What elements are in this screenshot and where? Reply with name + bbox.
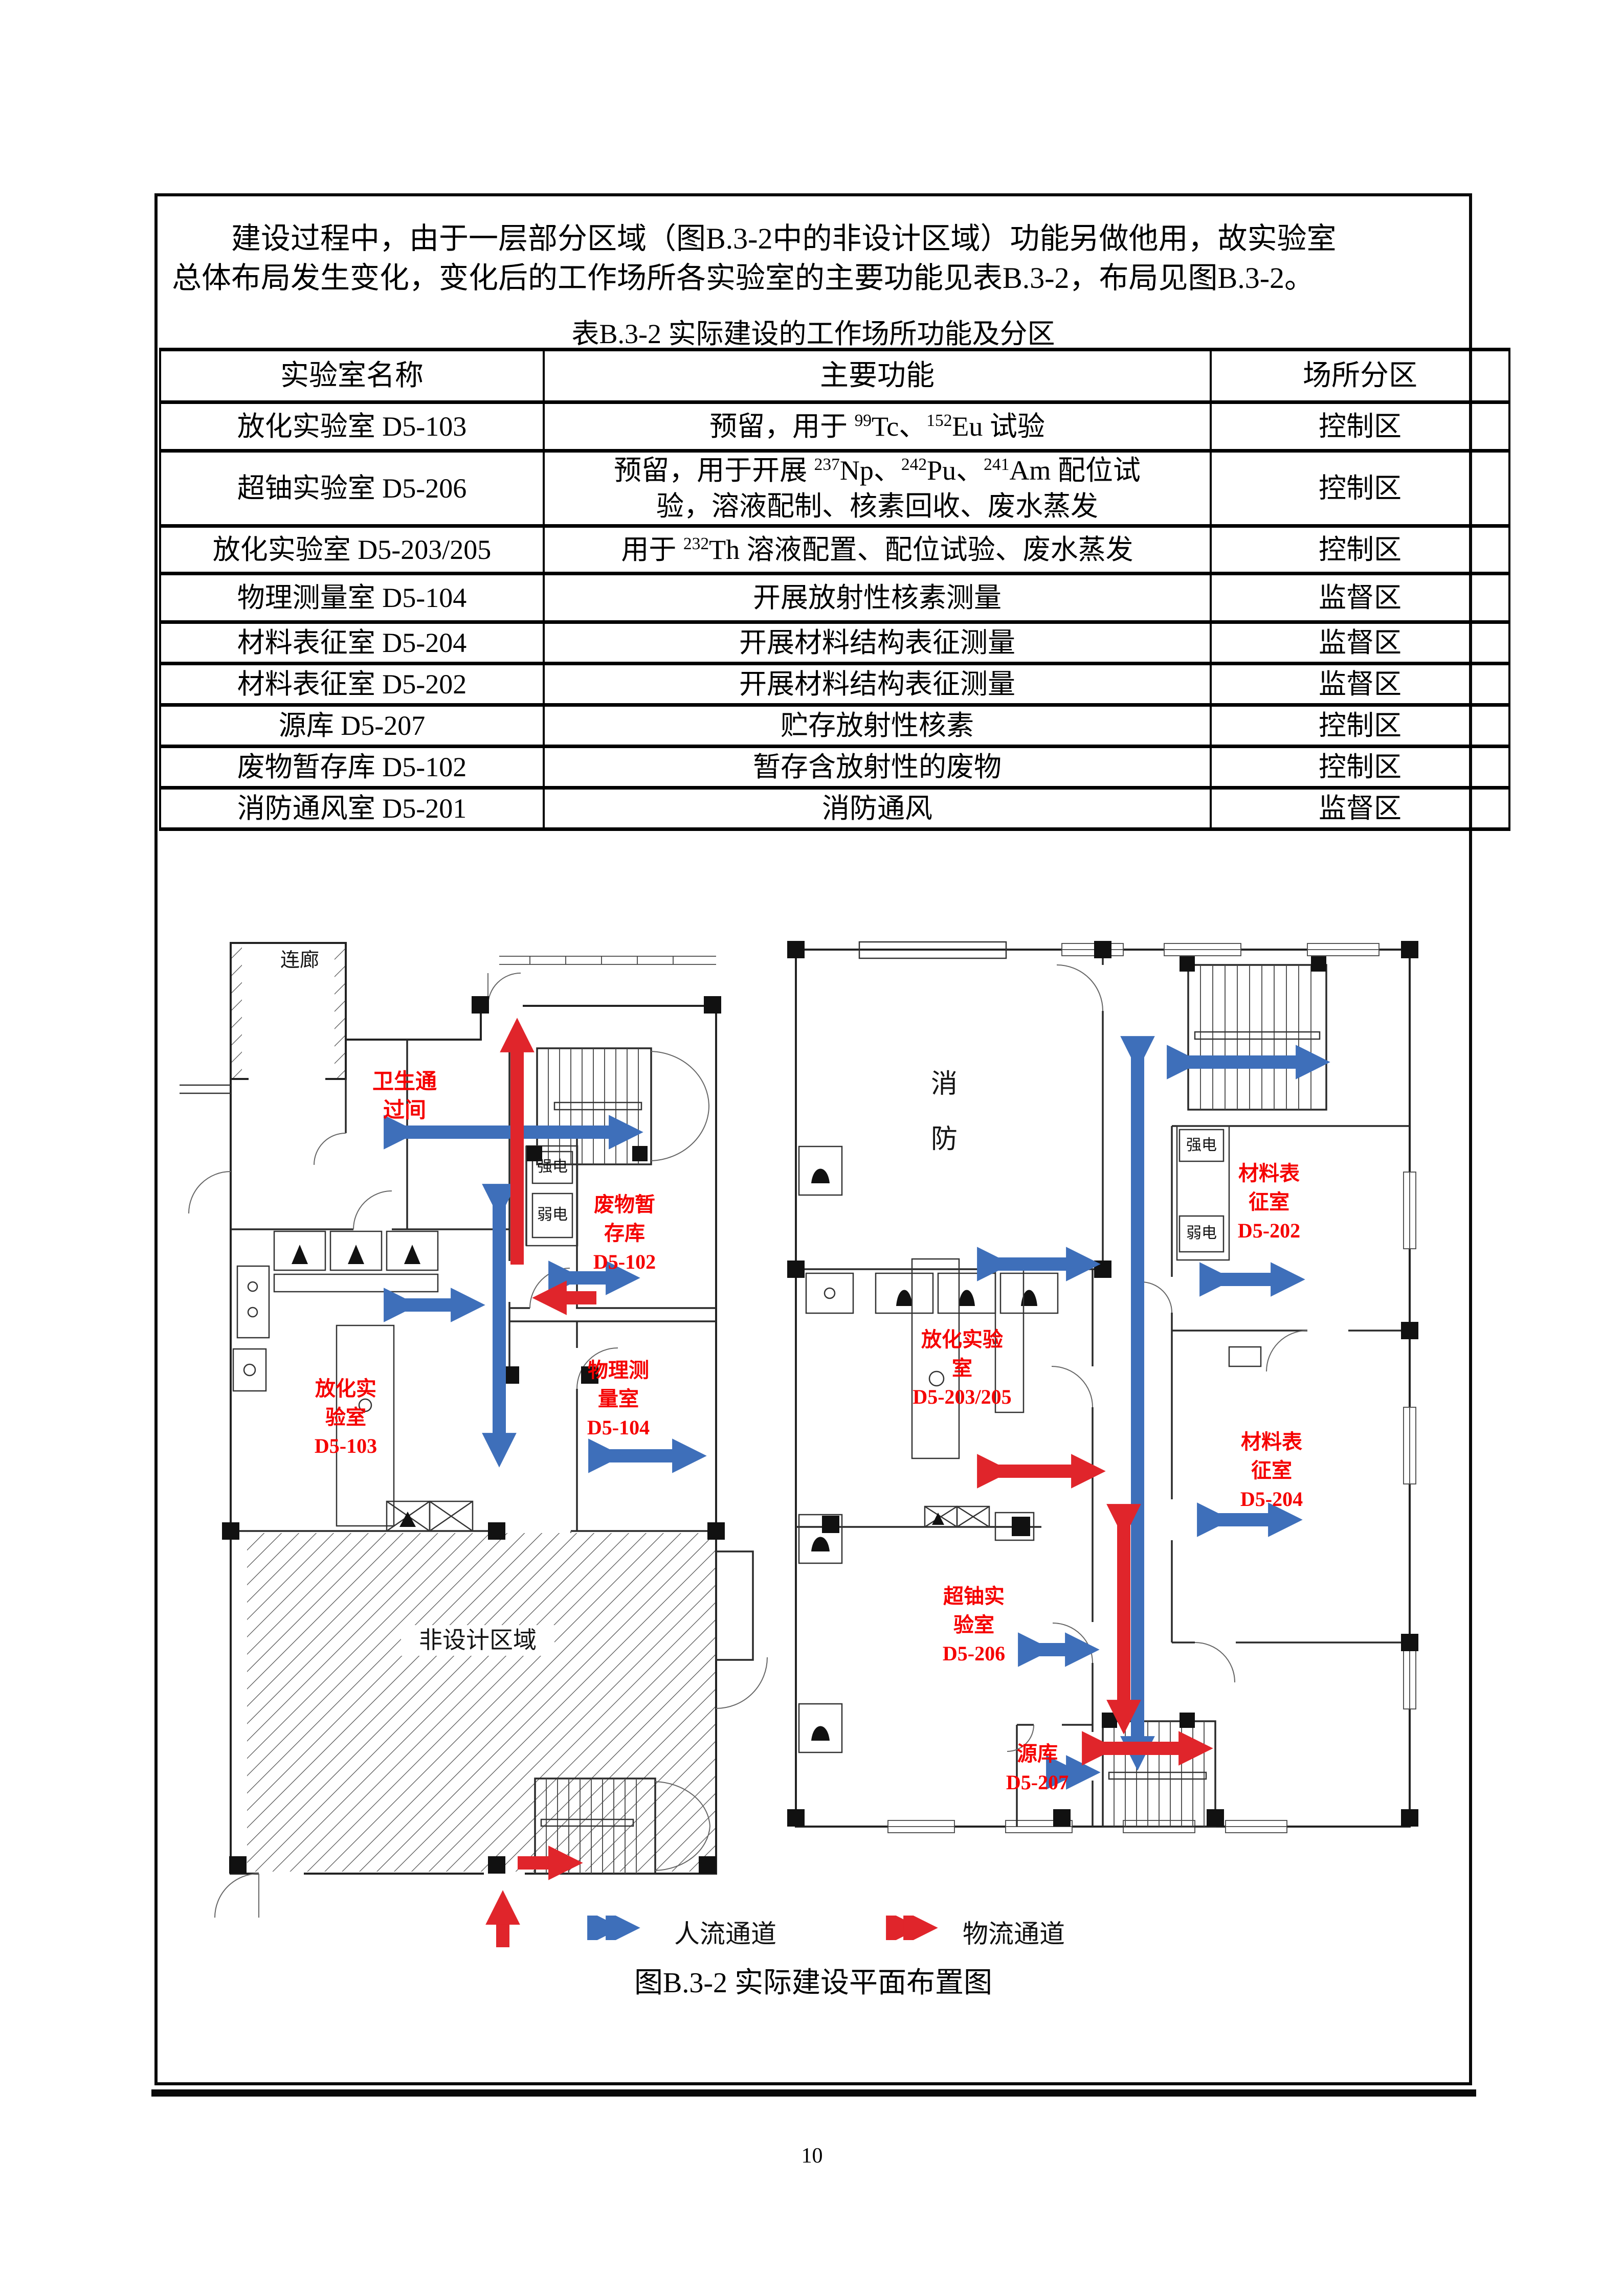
- zone-cell: 控制区: [1211, 526, 1509, 574]
- door-arcs: [1007, 965, 1307, 1751]
- table-row: 放化实验室 D5-203/205用于 232Th 溶液配置、配位试验、废水蒸发控…: [160, 526, 1509, 574]
- interior-walls: [796, 950, 1410, 1827]
- zone-cell: 控制区: [1211, 451, 1509, 526]
- label-mat-room-204: 材料表 征室 D5-204: [1220, 1428, 1323, 1514]
- page-number: 10: [0, 2144, 1624, 2168]
- sink-unit: [233, 1266, 269, 1391]
- corridor-hatch-left: [232, 944, 242, 1078]
- table-row: 物理测量室 D5-104开展放射性核素测量监督区: [160, 574, 1509, 622]
- label-fire-room: 消 防: [914, 1057, 975, 1167]
- table-row: 源库 D5-207贮存放射性核素控制区: [160, 705, 1509, 747]
- content-frame: 建设过程中，由于一层部分区域（图B.3-2中的非设计区域）功能另做他用，故实验室…: [154, 193, 1472, 2085]
- table-header-row: 实验室名称主要功能场所分区: [160, 350, 1509, 402]
- zone-cell: 控制区: [1211, 747, 1509, 788]
- table-row: 废物暂存库 D5-102暂存含放射性的废物控制区: [160, 747, 1509, 788]
- function-cell: 预留，用于 99Tc、152Eu 试验: [544, 402, 1211, 451]
- zone-cell: 监督区: [1211, 622, 1509, 664]
- floor-plan-second-floor-drawing: [775, 906, 1425, 1857]
- lab-name-cell: 放化实验室 D5-203/205: [160, 526, 544, 574]
- wall-alcoves: [799, 1146, 842, 1752]
- function-cell: 暂存含放射性的废物: [544, 747, 1211, 788]
- function-cell: 开展放射性核素测量: [544, 574, 1211, 622]
- zone-cell: 监督区: [1211, 788, 1509, 829]
- table-row: 材料表征室 D5-202开展材料结构表征测量监督区: [160, 664, 1509, 705]
- non-design-hatch: [247, 1533, 715, 1872]
- label-strong-power: 强电: [532, 1158, 572, 1176]
- lab-name-cell: 放化实验室 D5-103: [160, 402, 544, 451]
- shaft-boxes: [925, 1506, 1034, 1540]
- label-phys-room-104: 物理测 量室 D5-104: [567, 1356, 670, 1442]
- lab-name-cell: 材料表征室 D5-204: [160, 622, 544, 664]
- table-row: 超铀实验室 D5-206预留，用于开展 237Np、242Pu、241Am 配位…: [160, 451, 1509, 526]
- function-cell: 贮存放射性核素: [544, 705, 1211, 747]
- table-row: 材料表征室 D5-204开展材料结构表征测量监督区: [160, 622, 1509, 664]
- floor-plan-first-floor: 连廊 卫生通 过间 强电 弱电 废物暂 存库 D5-102 放化实 验室 D5-…: [172, 913, 770, 1959]
- table-row: 放化实验室 D5-103预留，用于 99Tc、152Eu 试验控制区: [160, 402, 1509, 451]
- table-body: 实验室名称主要功能场所分区放化实验室 D5-103预留，用于 99Tc、152E…: [160, 350, 1509, 829]
- lab-name-cell: 源库 D5-207: [160, 705, 544, 747]
- floor-plan-first-floor-drawing: [172, 913, 770, 1959]
- fume-hoods: [806, 1273, 1058, 1313]
- label-rad-lab-203-205: 放化实验 室 D5-203/205: [896, 1325, 1029, 1411]
- stairs-lower: [1103, 1721, 1215, 1827]
- label-waste-store-102: 废物暂 存库 D5-102: [573, 1190, 676, 1276]
- stairs-upper: [1188, 965, 1326, 1110]
- entry-canopy: [499, 956, 716, 964]
- table-header-cell: 场所分区: [1211, 350, 1509, 402]
- function-cell: 用于 232Th 溶液配置、配位试验、废水蒸发: [544, 526, 1211, 574]
- label-weak-power: 弱电: [1180, 1224, 1223, 1243]
- label-trans-lab-206: 超铀实 验室 D5-206: [923, 1582, 1025, 1668]
- table-row: 消防通风室 D5-201消防通风监督区: [160, 788, 1509, 829]
- table-header-cell: 主要功能: [544, 350, 1211, 402]
- corridor-hatch-right: [335, 944, 345, 1078]
- label-corridor: 连廊: [269, 946, 330, 975]
- table-title: 表B.3-2 实际建设的工作场所功能及分区: [158, 311, 1469, 351]
- function-cell: 开展材料结构表征测量: [544, 622, 1211, 664]
- material-flow-legend-icon: [843, 1916, 950, 1940]
- exterior-stub: [180, 1085, 231, 1093]
- document-page: 建设过程中，由于一层部分区域（图B.3-2中的非设计区域）功能另做他用，故实验室…: [0, 0, 1624, 2296]
- function-cell: 预留，用于开展 237Np、242Pu、241Am 配位试 验，溶液配制、核素回…: [544, 451, 1211, 526]
- people-flow-legend-icon: [542, 1916, 655, 1940]
- functions-table: 实验室名称主要功能场所分区放化实验室 D5-103预留，用于 99Tc、152E…: [159, 348, 1510, 831]
- lab-name-cell: 物理测量室 D5-104: [160, 574, 544, 622]
- label-non-design-area: 非设计区域: [401, 1625, 554, 1656]
- lab-name-cell: 消防通风室 D5-201: [160, 788, 544, 829]
- label-source-store-207: 源库 D5-207: [986, 1740, 1088, 1797]
- label-mat-room-202: 材料表 征室 D5-202: [1218, 1159, 1320, 1245]
- table-header-cell: 实验室名称: [160, 350, 544, 402]
- shaft-boxes: [387, 1501, 473, 1531]
- lab-name-cell: 超铀实验室 D5-206: [160, 451, 544, 526]
- lab-name-cell: 材料表征室 D5-202: [160, 664, 544, 705]
- function-cell: 开展材料结构表征测量: [544, 664, 1211, 705]
- stairs-upper: [537, 1048, 709, 1164]
- intro-paragraph: 建设过程中，由于一层部分区域（图B.3-2中的非设计区域）功能另做他用，故实验室…: [172, 219, 1461, 298]
- zone-cell: 控制区: [1211, 402, 1509, 451]
- label-strong-power: 强电: [1180, 1136, 1223, 1155]
- function-cell: 消防通风: [544, 788, 1211, 829]
- label-sanitary-pass: 卫生通 过间: [353, 1068, 456, 1125]
- floor-plan-second-floor: 消 防 强电 弱电 材料表 征室 D5-202 放化实验 室 D5-203/20…: [775, 906, 1425, 1857]
- right-bay: [716, 1551, 753, 1660]
- label-rad-lab-103: 放化实 验室 D5-103: [295, 1375, 397, 1460]
- zone-cell: 控制区: [1211, 705, 1509, 747]
- figure-caption: 图B.3-2 实际建设平面布置图: [154, 1960, 1472, 2001]
- material-flow-legend-label: 物流通道: [963, 1914, 1065, 1950]
- people-flow-legend-label: 人流通道: [674, 1914, 776, 1950]
- fume-hoods: [274, 1231, 438, 1292]
- label-weak-power: 弱电: [532, 1206, 572, 1224]
- lab-name-cell: 废物暂存库 D5-102: [160, 747, 544, 788]
- zone-cell: 监督区: [1211, 574, 1509, 622]
- bottom-rule: [151, 2089, 1476, 2097]
- zone-cell: 监督区: [1211, 664, 1509, 705]
